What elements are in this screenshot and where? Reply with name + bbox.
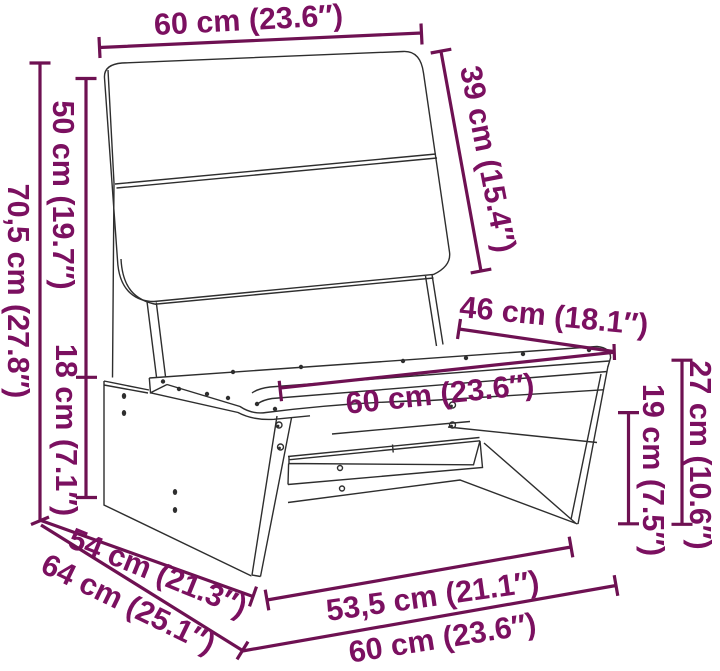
- svg-text:19 cm (7.5″): 19 cm (7.5″): [636, 384, 670, 556]
- svg-text:27 cm (10.6″): 27 cm (10.6″): [683, 360, 717, 549]
- svg-text:70,5 cm (27.8″): 70,5 cm (27.8″): [1, 184, 35, 399]
- svg-text:18 cm (7.1″): 18 cm (7.1″): [49, 344, 83, 516]
- svg-text:50 cm (19.7″): 50 cm (19.7″): [46, 100, 80, 289]
